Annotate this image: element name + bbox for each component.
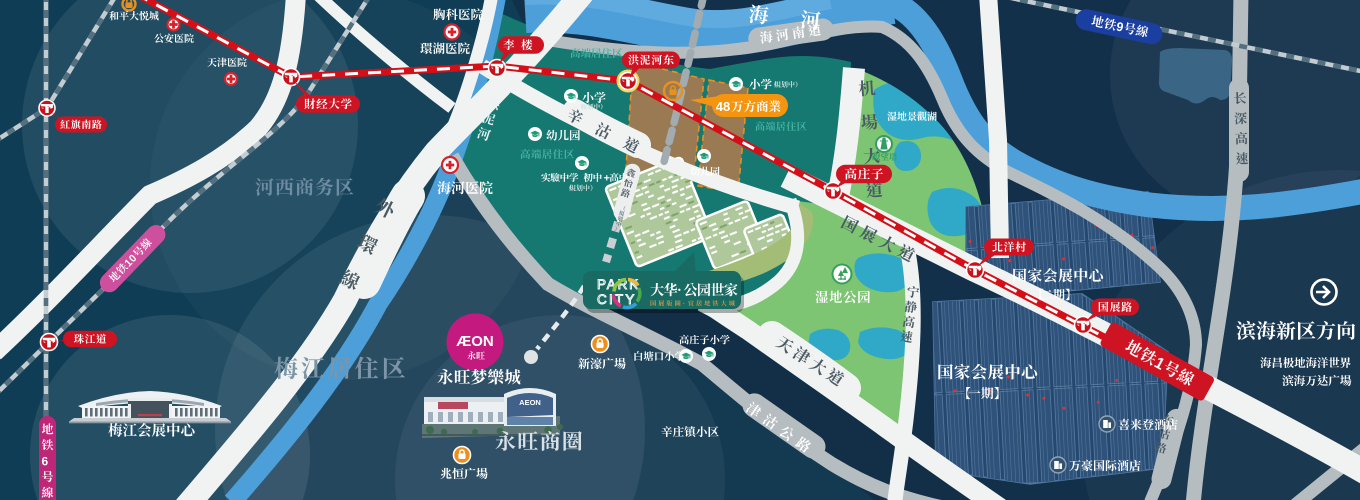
svg-text:48: 48 <box>716 99 730 114</box>
svg-text:ÆON: ÆON <box>456 333 494 350</box>
svg-text:AEON: AEON <box>519 398 541 407</box>
